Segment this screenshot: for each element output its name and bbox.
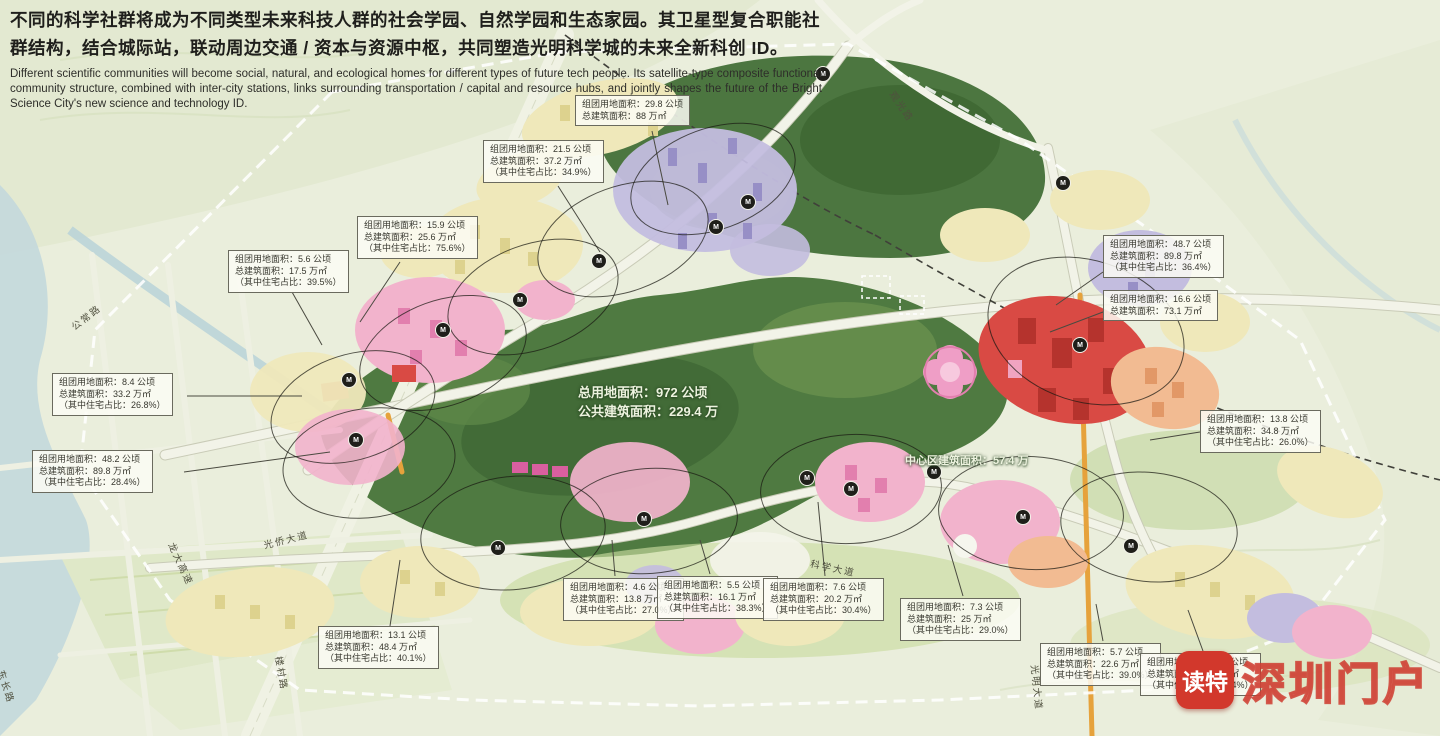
callout-line: （其中住宅占比：40.1%）: [325, 653, 432, 665]
masterplan-canvas: M M M M M M M M M M M M M M M M M 不同的科学社…: [0, 0, 1440, 736]
callout-line: 组团用地面积：5.7 公顷: [1047, 647, 1154, 659]
callout-line: 总建筑面积：17.5 万㎡: [235, 266, 342, 278]
land-stat-callout-14: 组团用地面积：48.7 公顷 总建筑面积：89.8 万㎡ （其中住宅占比：36.…: [1103, 235, 1224, 278]
land-stat-callout-6: 组团用地面积：48.2 公顷 总建筑面积：89.8 万㎡ （其中住宅占比：28.…: [32, 450, 153, 493]
callout-line: （其中住宅占比：39.0%）: [1047, 670, 1154, 682]
callout-line: 总建筑面积：48.4 万㎡: [325, 642, 432, 654]
metro-station-marker: M: [435, 322, 451, 338]
dutenews-logo-icon: 读特: [1176, 651, 1234, 709]
callout-line: （其中住宅占比：29.0%）: [907, 625, 1014, 637]
metro-station-marker: M: [1123, 538, 1139, 554]
park-total-area-label: 总用地面积：972 公顷 公共建筑面积：229.4 万: [578, 384, 718, 422]
metro-station-marker: M: [591, 253, 607, 269]
callout-line: 组团用地面积：7.3 公顷: [907, 602, 1014, 614]
callout-line: （其中住宅占比：39.5%）: [235, 277, 342, 289]
callout-line: 组团用地面积：15.9 公顷: [364, 220, 471, 232]
callout-line: 总建筑面积：89.8 万㎡: [1110, 251, 1217, 263]
metro-station-marker: M: [490, 540, 506, 556]
callout-line: 组团用地面积：5.6 公顷: [235, 254, 342, 266]
callout-line: 总建筑面积：22.6 万㎡: [1047, 659, 1154, 671]
intro-text-block: 不同的科学社群将成为不同类型未来科技人群的社会学园、自然学园和生态家园。其卫星型…: [10, 6, 822, 113]
watermark: 读特 深圳门户: [1176, 648, 1430, 712]
callout-line: 组团用地面积：13.8 公顷: [1207, 414, 1314, 426]
land-stat-callout-15: 组团用地面积：16.6 公顷 总建筑面积：73.1 万㎡: [1103, 290, 1218, 321]
callout-line: 总建筑面积：16.1 万㎡: [664, 592, 771, 604]
land-stat-callout-4: 组团用地面积：5.6 公顷 总建筑面积：17.5 万㎡ （其中住宅占比：39.5…: [228, 250, 349, 293]
metro-station-marker: M: [843, 481, 859, 497]
callout-line: 总建筑面积：20.2 万㎡: [770, 594, 877, 606]
callout-line: 总建筑面积：34.8 万㎡: [1207, 426, 1314, 438]
callout-line: （其中住宅占比：75.6%）: [364, 243, 471, 255]
land-stat-callout-7: 组团用地面积：13.1 公顷 总建筑面积：48.4 万㎡ （其中住宅占比：40.…: [318, 626, 439, 669]
metro-station-marker: M: [740, 194, 756, 210]
callout-line: （其中住宅占比：38.3%）: [664, 603, 771, 615]
land-stat-callout-11: 组团用地面积：7.3 公顷 总建筑面积：25 万㎡ （其中住宅占比：29.0%）: [900, 598, 1021, 641]
callout-line: 组团用地面积：8.4 公顷: [59, 377, 166, 389]
callout-line: 组团用地面积：13.1 公顷: [325, 630, 432, 642]
metro-station-marker: M: [1072, 337, 1088, 353]
intro-text-en: Different scientific communities will be…: [10, 67, 822, 113]
callout-line: 组团用地面积：7.6 公顷: [770, 582, 877, 594]
metro-station-marker: M: [799, 470, 815, 486]
callout-line: 组团用地面积：5.5 公顷: [664, 580, 771, 592]
land-stat-callout-10: 组团用地面积：7.6 公顷 总建筑面积：20.2 万㎡ （其中住宅占比：30.4…: [763, 578, 884, 621]
callout-line: 组团用地面积：21.5 公顷: [490, 144, 597, 156]
callout-line: （其中住宅占比：36.4%）: [1110, 262, 1217, 274]
land-stat-callout-3: 组团用地面积：15.9 公顷 总建筑面积：25.6 万㎡ （其中住宅占比：75.…: [357, 216, 478, 259]
callout-line: 总建筑面积：25.6 万㎡: [364, 232, 471, 244]
callout-line: （其中住宅占比：26.8%）: [59, 400, 166, 412]
callout-line: 总建筑面积：73.1 万㎡: [1110, 306, 1211, 318]
callout-line: 总建筑面积：33.2 万㎡: [59, 389, 166, 401]
callout-line: 组团用地面积：48.2 公顷: [39, 454, 146, 466]
callout-line: 总建筑面积：37.2 万㎡: [490, 156, 597, 168]
callout-line: 组团用地面积：16.6 公顷: [1110, 294, 1211, 306]
callout-line: 总建筑面积：25 万㎡: [907, 614, 1014, 626]
watermark-text: 深圳门户: [1242, 648, 1430, 712]
park-area-line: 公共建筑面积：229.4 万: [578, 403, 718, 422]
land-stat-callout-16: 组团用地面积：13.8 公顷 总建筑面积：34.8 万㎡ （其中住宅占比：26.…: [1200, 410, 1321, 453]
callout-line: （其中住宅占比：28.4%）: [39, 477, 146, 489]
metro-station-marker: M: [512, 292, 528, 308]
metro-station-marker: M: [341, 372, 357, 388]
metro-station-marker: M: [1055, 175, 1071, 191]
callout-line: （其中住宅占比：34.9%）: [490, 167, 597, 179]
intro-text-zh: 不同的科学社群将成为不同类型未来科技人群的社会学园、自然学园和生态家园。其卫星型…: [10, 6, 822, 62]
land-stat-callout-2: 组团用地面积：21.5 公顷 总建筑面积：37.2 万㎡ （其中住宅占比：34.…: [483, 140, 604, 183]
callout-line: （其中住宅占比：30.4%）: [770, 605, 877, 617]
core-area-label: 中心区建筑面积：57.4 万: [905, 452, 1028, 468]
metro-station-marker: M: [708, 219, 724, 235]
callout-line: （其中住宅占比：26.0%）: [1207, 437, 1314, 449]
land-stat-callout-9: 组团用地面积：5.5 公顷 总建筑面积：16.1 万㎡ （其中住宅占比：38.3…: [657, 576, 778, 619]
metro-station-marker: M: [1015, 509, 1031, 525]
callout-line: 组团用地面积：48.7 公顷: [1110, 239, 1217, 251]
metro-station-marker: M: [348, 432, 364, 448]
metro-station-marker: M: [636, 511, 652, 527]
callout-line: 总建筑面积：89.8 万㎡: [39, 466, 146, 478]
land-stat-callout-5: 组团用地面积：8.4 公顷 总建筑面积：33.2 万㎡ （其中住宅占比：26.8…: [52, 373, 173, 416]
park-area-line: 总用地面积：972 公顷: [578, 384, 718, 403]
